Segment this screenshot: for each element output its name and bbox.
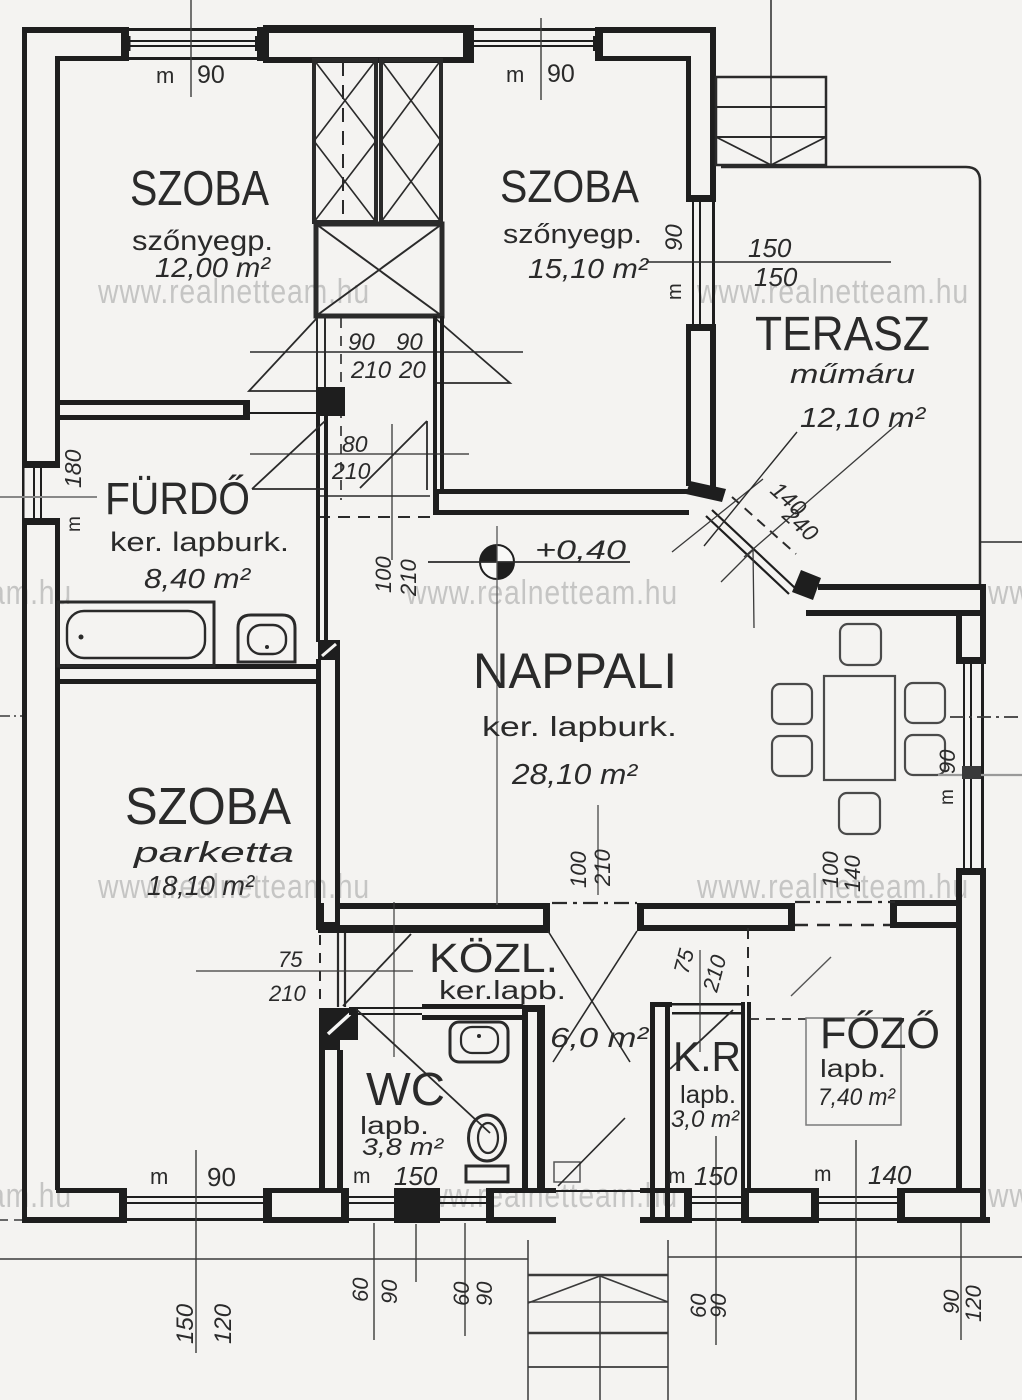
svg-text:90: 90 xyxy=(348,329,375,356)
svg-text:www.realnetteam.hu: www.realnetteam.hu xyxy=(0,574,72,612)
svg-text:m: m xyxy=(814,1163,832,1186)
svg-text:120: 120 xyxy=(961,1285,986,1322)
svg-text:28,10 m²: 28,10 m² xyxy=(511,759,639,791)
svg-text:180: 180 xyxy=(60,449,86,488)
svg-text:90: 90 xyxy=(661,224,688,251)
svg-text:www.realnetteam.hu: www.realnetteam.hu xyxy=(405,574,678,612)
svg-text:60: 60 xyxy=(348,1277,373,1302)
svg-text:lapb.: lapb. xyxy=(680,1081,736,1109)
svg-text:SZOBA: SZOBA xyxy=(125,778,291,836)
svg-text:ker. lapburk.: ker. lapburk. xyxy=(110,527,289,557)
svg-text:FÜRDŐ: FÜRDŐ xyxy=(105,473,250,524)
svg-text:NAPPALI: NAPPALI xyxy=(473,643,677,699)
svg-text:m: m xyxy=(64,516,85,532)
svg-text:www.realnetteam.hu: www.realnetteam.hu xyxy=(696,273,969,311)
svg-text:parketta: parketta xyxy=(132,837,294,869)
svg-text:m: m xyxy=(353,1165,371,1188)
svg-text:7,40 m²: 7,40 m² xyxy=(818,1084,896,1111)
svg-text:18,10 m²: 18,10 m² xyxy=(147,870,256,901)
svg-text:K.R: K.R xyxy=(673,1033,741,1080)
svg-text:90: 90 xyxy=(377,1279,402,1304)
svg-text:ker.lapb.: ker.lapb. xyxy=(439,975,566,1005)
svg-text:3,8 m²: 3,8 m² xyxy=(362,1134,444,1161)
svg-text:90: 90 xyxy=(547,60,575,88)
svg-text:műmáru: műmáru xyxy=(790,359,915,389)
svg-text:lapb.: lapb. xyxy=(820,1055,886,1083)
svg-text:FŐZŐ: FŐZŐ xyxy=(820,1009,940,1058)
svg-text:150: 150 xyxy=(172,1303,199,1344)
svg-text:3,0 m²: 3,0 m² xyxy=(671,1106,740,1133)
svg-text:90: 90 xyxy=(197,61,225,89)
svg-text:8,40 m²: 8,40 m² xyxy=(144,563,252,594)
svg-text:150: 150 xyxy=(394,1161,438,1191)
svg-text:m: m xyxy=(150,1164,168,1189)
svg-text:90: 90 xyxy=(706,1293,731,1318)
svg-text:150: 150 xyxy=(694,1161,738,1191)
svg-text:m: m xyxy=(937,789,958,805)
svg-text:szőnyegp.: szőnyegp. xyxy=(503,219,642,249)
svg-text:12,00 m²: 12,00 m² xyxy=(155,252,272,283)
svg-text:15,10 m²: 15,10 m² xyxy=(528,253,650,284)
svg-text:12,10 m²: 12,10 m² xyxy=(800,402,927,433)
svg-text:www.realnetteam.hu: www.realnetteam.hu xyxy=(0,1177,72,1215)
svg-text:90: 90 xyxy=(207,1162,236,1192)
svg-text:120: 120 xyxy=(210,1303,237,1344)
svg-text:m: m xyxy=(668,1165,686,1188)
svg-text:m: m xyxy=(506,62,524,87)
svg-text:SZOBA: SZOBA xyxy=(500,161,639,212)
svg-text:140: 140 xyxy=(868,1160,912,1190)
svg-text:90: 90 xyxy=(472,1281,497,1306)
svg-text:210: 210 xyxy=(350,357,392,384)
svg-text:90: 90 xyxy=(935,749,960,774)
svg-text:www.realnetteam.hu: www.realnetteam.hu xyxy=(987,1177,1022,1215)
svg-text:150: 150 xyxy=(754,262,798,292)
svg-text:140: 140 xyxy=(840,855,865,892)
svg-text:80: 80 xyxy=(342,431,368,457)
svg-text:6,0 m²: 6,0 m² xyxy=(550,1022,650,1053)
svg-text:210: 210 xyxy=(590,849,615,887)
svg-text:60: 60 xyxy=(449,1281,474,1306)
svg-text:90: 90 xyxy=(396,329,423,356)
svg-text:WC: WC xyxy=(366,1063,445,1115)
svg-text:20: 20 xyxy=(398,357,426,384)
svg-text:+0,40: +0,40 xyxy=(535,535,626,565)
svg-text:210: 210 xyxy=(268,981,306,1006)
svg-text:m: m xyxy=(664,283,686,300)
svg-text:100: 100 xyxy=(566,851,591,888)
svg-text:SZOBA: SZOBA xyxy=(130,162,269,216)
svg-text:75: 75 xyxy=(278,947,303,972)
svg-text:TERASZ: TERASZ xyxy=(755,308,930,361)
svg-text:ker. lapburk.: ker. lapburk. xyxy=(482,711,677,742)
svg-text:210: 210 xyxy=(396,559,421,597)
svg-text:www.realnetteam.hu: www.realnetteam.hu xyxy=(987,574,1022,612)
svg-text:210: 210 xyxy=(331,458,371,484)
svg-text:100: 100 xyxy=(371,556,396,593)
svg-text:m: m xyxy=(156,63,174,88)
svg-text:150: 150 xyxy=(748,233,792,263)
